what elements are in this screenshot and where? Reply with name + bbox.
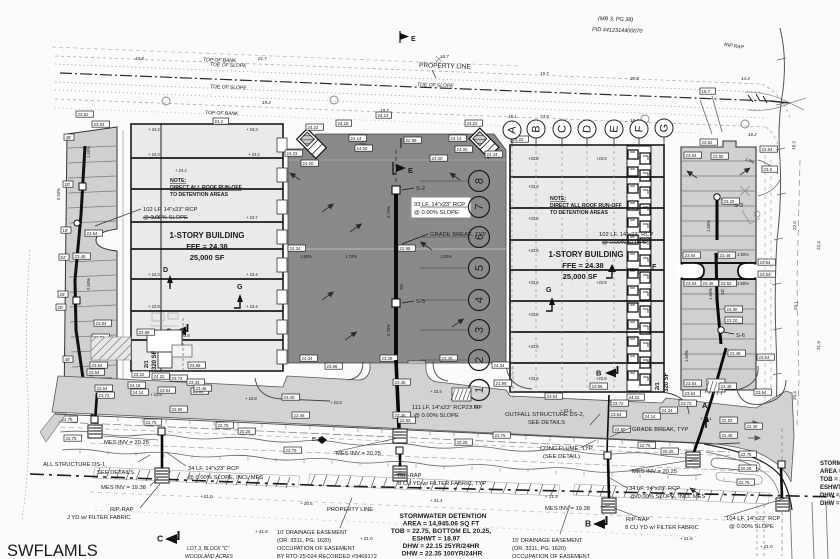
svg-text:E: E: [408, 166, 413, 175]
svg-text:4: 4: [474, 296, 486, 303]
svg-text:21.98: 21.98: [496, 381, 508, 386]
svg-text:24.2: 24.2: [215, 119, 224, 124]
svg-text:BY RTO-25-024 RECORDED #346917: BY RTO-25-024 RECORDED #3469172: [277, 554, 377, 559]
svg-text:B: B: [596, 369, 602, 378]
svg-text:LOT 3, BLOCK "C": LOT 3, BLOCK "C": [187, 546, 229, 552]
svg-text:0.75%: 0.75%: [386, 324, 391, 336]
svg-text:23.48: 23.48: [730, 351, 742, 356]
svg-text:B: B: [530, 125, 543, 133]
svg-text:F: F: [652, 264, 657, 271]
svg-text:43.8: 43.8: [135, 56, 144, 61]
svg-text:C: C: [157, 534, 163, 544]
svg-text:23.88: 23.88: [139, 330, 151, 335]
svg-text:S-6: S-6: [736, 333, 745, 339]
svg-text:+23.9: +23.9: [596, 156, 607, 161]
svg-text:15.1: 15.1: [508, 114, 517, 119]
svg-text:+ 21.6: + 21.6: [680, 536, 693, 541]
svg-text:20.25: 20.25: [240, 429, 252, 434]
svg-text:E: E: [608, 125, 621, 133]
svg-text:+ 22.8: + 22.8: [470, 404, 482, 409]
svg-text:24.22: 24.22: [629, 395, 641, 400]
svg-text:TOB = 2: TOB = 2: [820, 477, 840, 483]
svg-text:+ 24.3: + 24.3: [148, 272, 160, 277]
svg-text:B: B: [585, 519, 591, 529]
svg-text:8: 8: [474, 177, 486, 184]
svg-text:23.64: 23.64: [685, 391, 697, 396]
svg-text:24.00: 24.00: [457, 147, 469, 152]
svg-text:+ 23.7: + 23.7: [246, 215, 258, 220]
svg-text:RIP-RAP: RIP-RAP: [110, 507, 134, 513]
svg-text:22.75: 22.75: [218, 423, 230, 428]
svg-text:A: A: [702, 401, 708, 410]
svg-text:(OR. 3311, PG. 1620): (OR. 3311, PG. 1620): [277, 538, 331, 544]
svg-text:16.2: 16.2: [748, 132, 757, 137]
svg-text:22.30: 22.30: [747, 424, 759, 429]
svg-text:23.64: 23.64: [89, 370, 101, 375]
svg-text:24.14: 24.14: [451, 136, 463, 141]
svg-text:23.80: 23.80: [713, 154, 725, 159]
svg-text:AREA =: AREA =: [820, 469, 840, 475]
svg-text:1.50%: 1.50%: [708, 288, 713, 300]
svg-text:2: 2: [474, 356, 486, 363]
svg-text:24.34: 24.34: [494, 363, 506, 368]
svg-text:23.44: 23.44: [189, 380, 201, 385]
svg-text:+ 21.3: + 21.3: [545, 494, 558, 499]
svg-text:23.20: 23.20: [724, 199, 736, 204]
svg-text:22.46: 22.46: [294, 413, 306, 418]
svg-text:24.34: 24.34: [302, 356, 314, 361]
svg-text:8 CU YD w/ FILTER FABRIC, TYP: 8 CU YD w/ FILTER FABRIC, TYP: [398, 481, 486, 487]
svg-text:22.90: 22.90: [615, 427, 627, 432]
svg-text:23.48: 23.48: [75, 254, 87, 259]
svg-text:+23.8: +23.8: [528, 248, 539, 253]
svg-text:23.64: 23.64: [547, 394, 559, 399]
svg-text:+ 24.2: + 24.2: [148, 127, 160, 132]
svg-text:24.34: 24.34: [487, 152, 499, 157]
svg-text:+23.8: +23.8: [596, 280, 607, 285]
svg-text:21.9: 21.9: [816, 341, 821, 350]
svg-text:21.7: 21.7: [257, 56, 267, 61]
svg-text:320 SF: 320 SF: [664, 372, 670, 392]
svg-text:6: 6: [474, 233, 486, 240]
svg-text:+ 22.8: + 22.8: [245, 396, 257, 401]
svg-text:22.75: 22.75: [495, 433, 507, 438]
svg-text:1.50%: 1.50%: [86, 146, 91, 158]
svg-text:DHW =: DHW =: [820, 501, 840, 507]
svg-text:(SEE DETAIL): (SEE DETAIL): [543, 454, 580, 460]
svg-text:23.48: 23.48: [721, 384, 733, 389]
svg-text:22.75: 22.75: [146, 420, 158, 425]
svg-text:23.64: 23.64: [756, 390, 768, 395]
svg-text:SD: SD: [399, 284, 404, 290]
svg-text:26': 26': [60, 292, 66, 297]
svg-text:24.34: 24.34: [662, 408, 674, 413]
svg-text:G: G: [237, 284, 243, 291]
svg-text:+ 21.0: + 21.0: [200, 494, 213, 499]
svg-text:20.8: 20.8: [629, 76, 639, 81]
svg-text:+ 20.5: + 20.5: [300, 501, 313, 506]
svg-text:NOTE:: NOTE:: [550, 196, 566, 202]
svg-text:23.52: 23.52: [702, 140, 714, 145]
svg-text:23.1: 23.1: [793, 301, 798, 310]
svg-text:1.50%: 1.50%: [737, 252, 749, 257]
svg-text:25,000 SF: 25,000 SF: [563, 272, 598, 281]
svg-text:+ 23.1: + 23.1: [700, 416, 712, 421]
svg-text:+ 24.3: + 24.3: [148, 152, 160, 157]
svg-text:23.6: 23.6: [764, 167, 773, 172]
svg-text:OCCUPATION OF EASEMENT: OCCUPATION OF EASEMENT: [512, 554, 591, 559]
svg-text:23.40: 23.40: [284, 395, 296, 400]
svg-text:23.72: 23.72: [99, 393, 111, 398]
svg-text:22.90: 22.90: [172, 407, 184, 412]
svg-text:24.14: 24.14: [133, 390, 145, 395]
svg-text:23.64: 23.64: [686, 153, 698, 158]
svg-text:23.64: 23.64: [97, 386, 109, 391]
svg-text:1.50%: 1.50%: [440, 254, 452, 259]
svg-text:22.82: 22.82: [722, 418, 734, 423]
svg-text:24.14: 24.14: [351, 136, 363, 141]
svg-text:24.16: 24.16: [338, 121, 350, 126]
svg-text:+23.8: +23.8: [528, 376, 539, 381]
svg-text:1.70%: 1.70%: [345, 254, 357, 259]
svg-text:22.4: 22.4: [816, 241, 821, 250]
svg-text:+ 24.3: + 24.3: [246, 127, 258, 132]
svg-text:STORMWATER DETENTION: STORMWATER DETENTION: [400, 513, 487, 520]
svg-text:22.75: 22.75: [739, 480, 751, 485]
svg-text:20': 20': [58, 305, 64, 310]
svg-text:SEE DETAILS: SEE DETAILS: [528, 420, 565, 426]
svg-text:DHW = 22.35 100YR/24HR: DHW = 22.35 100YR/24HR: [402, 551, 483, 558]
svg-text:23.28: 23.28: [382, 356, 394, 361]
svg-text:48': 48': [65, 357, 71, 362]
svg-text:24.34: 24.34: [290, 246, 302, 251]
svg-text:+23.9: +23.9: [528, 156, 539, 161]
svg-text:ALL STRUCTURE DS-1,: ALL STRUCTURE DS-1,: [43, 462, 107, 468]
svg-text:23.52: 23.52: [721, 281, 733, 286]
svg-text:24.22: 24.22: [308, 125, 320, 130]
svg-text:ESHWT = 18.97: ESHWT = 18.97: [412, 536, 460, 543]
svg-text:34 LF, 14"x23" RCP: 34 LF, 14"x23" RCP: [629, 486, 680, 492]
svg-text:23.30: 23.30: [727, 307, 739, 312]
svg-text:22.98: 22.98: [400, 246, 412, 251]
svg-text:@ 0.00% SLOPE: @ 0.00% SLOPE: [729, 524, 774, 530]
svg-text:DIRECT ALL ROOF RUN-OFF: DIRECT ALL ROOF RUN-OFF: [170, 185, 242, 191]
svg-text:5: 5: [474, 264, 486, 271]
svg-text:23.46: 23.46: [703, 281, 715, 286]
svg-text:2/1: 2/1: [655, 382, 661, 390]
svg-text:NOTE:: NOTE:: [170, 178, 186, 184]
svg-text:ESHWT: ESHWT: [820, 485, 840, 491]
svg-text:23.84: 23.84: [96, 321, 108, 326]
svg-text:1: 1: [474, 386, 486, 393]
svg-text:PROPERTY LINE: PROPERTY LINE: [327, 507, 373, 513]
svg-text:23.52: 23.52: [78, 112, 90, 117]
svg-text:10' DRAINAGE EASEMENT: 10' DRAINAGE EASEMENT: [277, 530, 348, 536]
svg-text:+ 21.0: + 21.0: [360, 536, 373, 541]
svg-text:23.64: 23.64: [94, 122, 106, 127]
svg-text:23.64: 23.64: [611, 412, 623, 417]
svg-text:52': 52': [61, 255, 67, 260]
svg-text:102 LF, 14"x23" RCP: 102 LF, 14"x23" RCP: [143, 207, 198, 213]
svg-text:1-STORY BUILDING: 1-STORY BUILDING: [549, 250, 624, 259]
svg-text:+ 23.4: + 23.4: [430, 389, 442, 394]
svg-text:23.72: 23.72: [172, 376, 184, 381]
svg-text:+23.8: +23.8: [528, 216, 539, 221]
svg-text:SEE DETAILS: SEE DETAILS: [97, 470, 134, 476]
svg-text:SWFLAMLS: SWFLAMLS: [7, 542, 98, 559]
svg-text:48': 48': [66, 135, 72, 140]
svg-text:TOP OF BANK: TOP OF BANK: [205, 110, 239, 117]
svg-text:2/1: 2/1: [144, 360, 150, 368]
svg-text:(OR. 3311, PG. 1620): (OR. 3311, PG. 1620): [512, 546, 566, 552]
svg-text:DIRECT ALL ROOF RUN-OFF: DIRECT ALL ROOF RUN-OFF: [550, 203, 622, 209]
svg-text:FFE = 24.38: FFE = 24.38: [562, 261, 603, 270]
svg-text:FFE = 24.38: FFE = 24.38: [186, 242, 227, 251]
svg-text:22.6: 22.6: [792, 221, 797, 230]
svg-text:23.88: 23.88: [327, 364, 339, 369]
svg-text:24.00: 24.00: [432, 156, 444, 161]
svg-text:MES INV = 19.38: MES INV = 19.38: [545, 506, 590, 512]
svg-text:320 SF: 320 SF: [152, 350, 158, 370]
svg-text:8 CU YD w/ FILTER FABRIC: 8 CU YD w/ FILTER FABRIC: [625, 525, 699, 531]
svg-text:23.48: 23.48: [720, 253, 732, 258]
svg-text:3: 3: [474, 326, 486, 333]
svg-text:24.00: 24.00: [357, 146, 369, 151]
svg-text:102 LF, 14"x23" RCP: 102 LF, 14"x23" RCP: [599, 232, 654, 238]
svg-text:0.50%: 0.50%: [56, 188, 61, 200]
svg-text:23.48: 23.48: [196, 386, 208, 391]
svg-text:23.64: 23.64: [686, 381, 698, 386]
svg-text:+23.8: +23.8: [528, 344, 539, 349]
svg-text:@ 0.00% SLOPE, INCL MES: @ 0.00% SLOPE, INCL MES: [630, 494, 705, 500]
svg-text:23.72: 23.72: [613, 401, 625, 406]
svg-text:CONC FLUME, TYP: CONC FLUME, TYP: [540, 446, 593, 452]
svg-text:+ 21.0: + 21.0: [760, 544, 773, 549]
svg-text:20.25: 20.25: [741, 466, 753, 471]
svg-text:24.14: 24.14: [378, 113, 390, 118]
svg-text:23.86: 23.86: [592, 384, 604, 389]
svg-text:S-2: S-2: [416, 186, 425, 192]
svg-text:DHW =: DHW =: [820, 493, 840, 499]
svg-text:+23.8: +23.8: [528, 312, 539, 317]
svg-text:16.7: 16.7: [702, 89, 711, 94]
svg-text:20.4: 20.4: [792, 391, 797, 400]
svg-text:15' DRAINAGE EASEMENT: 15' DRAINAGE EASEMENT: [512, 538, 583, 544]
svg-text:23.20: 23.20: [727, 318, 739, 323]
svg-text:@ 0.00% SLOPE: @ 0.00% SLOPE: [602, 240, 647, 246]
svg-text:GRADE BREAK, TYP: GRADE BREAK, TYP: [632, 427, 688, 433]
svg-text:C: C: [556, 125, 569, 134]
svg-text:22.75: 22.75: [741, 452, 753, 457]
svg-text:20.25: 20.25: [663, 449, 675, 454]
svg-text:DHW = 22.15 25YR/24HR: DHW = 22.15 25YR/24HR: [403, 543, 480, 550]
svg-text:22.98: 22.98: [406, 138, 418, 143]
svg-text:+ 24.2: + 24.2: [175, 168, 187, 173]
svg-text:+ 23.4: + 23.4: [246, 272, 258, 277]
svg-text:23.64: 23.64: [686, 281, 698, 286]
svg-text:WOODLAND ACRES: WOODLAND ACRES: [185, 554, 234, 559]
svg-text:15.7: 15.7: [540, 71, 549, 76]
svg-text:34 LF, 14"x23" RCP: 34 LF, 14"x23" RCP: [188, 466, 239, 472]
svg-text:19.2: 19.2: [262, 100, 271, 105]
svg-text:24.14: 24.14: [645, 414, 657, 419]
svg-text:D: D: [581, 125, 594, 134]
svg-text:23.64: 23.64: [87, 231, 99, 236]
svg-text:+ 21.8: + 21.8: [255, 529, 268, 534]
svg-text:23.88: 23.88: [190, 363, 202, 368]
svg-text:TO DETENTION AREAS: TO DETENTION AREAS: [550, 210, 608, 216]
svg-text:G: G: [658, 123, 671, 133]
svg-text:+23.8: +23.8: [528, 280, 539, 285]
svg-text:+ 24.2: + 24.2: [248, 152, 260, 157]
svg-text:24.00: 24.00: [303, 161, 315, 166]
svg-text:+ 22.8: + 22.8: [330, 400, 342, 405]
svg-text:@ 0.00% SLOPE: @ 0.00% SLOPE: [414, 413, 459, 419]
svg-text:22.46: 22.46: [722, 433, 734, 438]
svg-text:RIP-RAP: RIP-RAP: [626, 517, 650, 523]
svg-text:+23.9: +23.9: [528, 184, 539, 189]
svg-text:@ 0.00% SLOPE: @ 0.00% SLOPE: [143, 215, 188, 221]
svg-text:1.90%: 1.90%: [300, 254, 312, 259]
svg-text:@ 0.00% SLOPE, INCL MES: @ 0.00% SLOPE, INCL MES: [188, 475, 263, 481]
svg-text:D: D: [163, 267, 168, 274]
svg-text:14.4: 14.4: [741, 76, 750, 81]
svg-text:1.50%: 1.50%: [684, 350, 689, 362]
svg-text:23.72: 23.72: [681, 401, 693, 406]
svg-text:0.50%: 0.50%: [86, 278, 91, 290]
svg-text:SD: SD: [720, 289, 725, 295]
svg-text:23.64: 23.64: [685, 253, 697, 258]
svg-text:104 LF, 14"x23" RCP: 104 LF, 14"x23" RCP: [726, 516, 781, 522]
svg-text:MES INV = 20.25: MES INV = 20.25: [336, 451, 381, 457]
svg-text:18.3: 18.3: [791, 140, 797, 150]
svg-text:23.64: 23.64: [759, 355, 771, 360]
svg-text:TOB = 22.75, BOTTOM EL 20.25,: TOB = 22.75, BOTTOM EL 20.25,: [391, 528, 491, 535]
svg-text:24.22: 24.22: [467, 121, 479, 126]
svg-text:1-STORY BUILDING: 1-STORY BUILDING: [170, 231, 245, 240]
svg-text:23.64: 23.64: [762, 147, 774, 152]
svg-text:J YD w/ FILTER FABRIC: J YD w/ FILTER FABRIC: [67, 515, 131, 521]
svg-text:1.50%: 1.50%: [706, 220, 711, 232]
svg-text:1.50%: 1.50%: [737, 281, 749, 286]
svg-text:24.16: 24.16: [130, 383, 142, 388]
svg-text:74.8: 74.8: [540, 114, 549, 119]
svg-text:22.75: 22.75: [640, 443, 652, 448]
svg-text:G: G: [546, 287, 552, 294]
svg-text:0.75%: 0.75%: [386, 206, 391, 218]
svg-text:(MB 3, PG 38): (MB 3, PG 38): [598, 16, 634, 23]
svg-text:MES INV = 19.38: MES INV = 19.38: [101, 485, 146, 491]
svg-text:24.23: 24.23: [287, 151, 299, 156]
svg-text:MES INV = 20.25: MES INV = 20.25: [104, 440, 149, 446]
svg-text:OUTFALL STRUCTURE DS-2,: OUTFALL STRUCTURE DS-2,: [505, 412, 585, 418]
svg-text:F: F: [633, 125, 646, 133]
svg-text:+ 23.4: + 23.4: [246, 304, 258, 309]
svg-text:E: E: [411, 36, 416, 43]
svg-text:+ 23.4: + 23.4: [560, 408, 572, 413]
svg-text:+ 22.8: + 22.8: [150, 392, 162, 397]
svg-text:20.25: 20.25: [457, 440, 469, 445]
svg-text:25,000 SF: 25,000 SF: [190, 253, 225, 262]
svg-text:24.22: 24.22: [154, 374, 166, 379]
svg-text:18': 18': [63, 228, 69, 233]
svg-text:22.75: 22.75: [66, 436, 78, 441]
svg-text:@ 0.00% SLOPE: @ 0.00% SLOPE: [414, 210, 459, 216]
svg-text:7: 7: [474, 203, 486, 210]
svg-text:20': 20': [65, 182, 71, 187]
svg-text:AREA = 14,945.06 SQ FT: AREA = 14,945.06 SQ FT: [403, 521, 480, 528]
svg-text:TO DETENTION AREAS: TO DETENTION AREAS: [170, 192, 228, 198]
svg-text:24.22: 24.22: [134, 372, 146, 377]
svg-text:STORMW: STORMW: [820, 461, 840, 467]
svg-text:OCCUPATION OF EASEMENT: OCCUPATION OF EASEMENT: [277, 546, 356, 552]
svg-text:23.46: 23.46: [395, 380, 407, 385]
svg-text:MES INV = 20.25: MES INV = 20.25: [632, 469, 677, 475]
svg-text:+ 23.9: + 23.9: [148, 304, 160, 309]
svg-text:+ 21.4: + 21.4: [430, 498, 443, 503]
svg-text:23.64: 23.64: [92, 363, 104, 368]
svg-text:22.90: 22.90: [400, 418, 412, 423]
svg-text:22.75: 22.75: [286, 448, 298, 453]
